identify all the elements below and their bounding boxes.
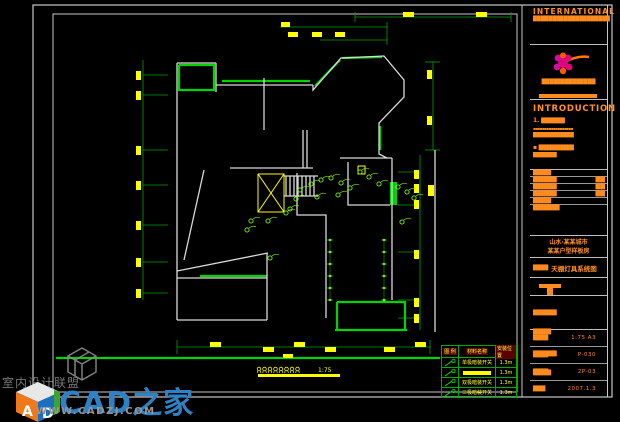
note-bars-section: ████████ ██████ ████████ ██████ [530, 296, 607, 330]
dimension-text-block [263, 347, 274, 352]
dimension-text-block [312, 32, 322, 37]
sheet-info-rows: █████1:75 A3█████P-030█████2P-03████2007… [530, 330, 607, 397]
item1-fineprint: ▪▪▪▪▪▪▪▪▪▪▪▪▪▪▪▪▪▪ [533, 125, 604, 132]
light-leader-line [404, 218, 411, 220]
wall-line [184, 170, 204, 260]
light-chain-dot [329, 263, 331, 265]
figure-title-symbol [263, 367, 267, 371]
t-mark-icon [539, 284, 561, 288]
figure-scale-text: 1:75 [318, 367, 332, 374]
signature-row: ███████████ [530, 184, 607, 191]
dimension-text-block [414, 298, 419, 307]
north-mark-row [530, 278, 607, 296]
dimension-text-block [403, 12, 414, 17]
item2-bar: ████████████ [539, 145, 573, 151]
figure-title-underline [258, 374, 340, 377]
figure-title-symbol [296, 367, 300, 371]
signature-row: ██████ [530, 198, 607, 205]
item1-bar2: ██████████████ [533, 132, 604, 139]
title-label: █████ [533, 265, 547, 271]
sheet-outer-border [33, 5, 612, 397]
title-block: INTERNATIONAL ████████████████████ █████… [530, 5, 608, 397]
signature-row: ███████████ [530, 191, 607, 198]
legend-header-row: 图 例 材料名称安装位置 [442, 346, 516, 357]
light-leader-line [416, 194, 423, 196]
dimension-text-block [414, 200, 419, 209]
figure-title-symbol [285, 367, 289, 371]
figure-title-symbol [268, 367, 272, 371]
light-chain-dot [329, 287, 331, 289]
dimension-text-block [136, 221, 141, 230]
dimension-text-block [414, 250, 419, 259]
wall-line [348, 162, 390, 205]
cad-sheet: 1:75 INTERNATIONAL ████████████████████ … [0, 0, 620, 422]
switch-icon [443, 359, 457, 367]
light-fixture-symbol [358, 170, 362, 174]
window-line [337, 302, 405, 330]
light-leader-line [343, 179, 350, 181]
dimension-text-block [136, 91, 141, 100]
figure-title-symbol [279, 367, 283, 371]
note-bar: ████████ [533, 310, 556, 316]
light-fixture-symbol [377, 182, 381, 186]
light-fixture-symbol [245, 228, 249, 232]
signature-rows: ████████████████████████████████████████… [530, 170, 607, 236]
dimension-text-block [136, 146, 141, 155]
light-fixture-symbol [284, 211, 288, 215]
item1-bar: ████████ [541, 118, 564, 124]
wall-line [313, 56, 404, 158]
company-name-en: INTERNATIONAL [533, 7, 604, 16]
switch-icon [443, 389, 457, 397]
light-chain-dot [329, 251, 331, 253]
light-fixture-symbol [405, 190, 409, 194]
switch-icon [443, 379, 457, 387]
light-fixture-symbol [400, 220, 404, 224]
light-fixture-symbol [268, 256, 272, 260]
light-chain-dot [329, 239, 331, 241]
dimension-text-block [294, 342, 305, 347]
light-leader-line [400, 183, 407, 185]
figure-title-symbol [257, 367, 261, 371]
dimension-text-block [325, 347, 336, 352]
dimension-text-block [335, 32, 345, 37]
switch-icon [443, 369, 457, 377]
light-chain-dot [383, 251, 385, 253]
project-name-section: 山水·某某城市 某某户型样板房 [530, 236, 607, 258]
dimension-text-block [136, 289, 141, 298]
signature-row: ██████ [530, 170, 607, 177]
light-chain-dot [383, 275, 385, 277]
light-leader-line [381, 180, 388, 182]
light-fixture-symbol [329, 176, 333, 180]
legend-row: 1.3m [442, 367, 516, 377]
sheet-info-row: █████2P-03 [530, 364, 607, 381]
light-fixture-symbol [367, 175, 371, 179]
light-leader-line [371, 173, 378, 175]
flower-logo-icon [533, 47, 604, 79]
light-leader-line [333, 174, 340, 176]
item2-number: ▪ [533, 144, 537, 151]
light-leader-line [352, 184, 359, 186]
dimension-text-block [427, 116, 432, 125]
dimension-text-block [384, 347, 395, 352]
light-fixture-symbol [412, 196, 416, 200]
dimension-text-block [281, 22, 290, 27]
light-leader-line [272, 254, 279, 256]
light-leader-line [319, 193, 326, 195]
company-subtitle-cn: ██████████████ [533, 79, 604, 85]
dimension-text-block [136, 258, 141, 267]
sheet-info-row: █████1:75 A3 [530, 330, 607, 347]
dimension-text-block [428, 185, 434, 196]
light-leader-line [340, 191, 347, 193]
light-chain-dot [383, 287, 385, 289]
introduction-heading: INTRODUCTION [533, 104, 604, 114]
light-fixture-symbol [266, 219, 270, 223]
window-line [179, 65, 214, 90]
legend-row: 单极暗装开关1.3m [442, 357, 516, 367]
dimension-text-block [415, 342, 426, 347]
light-chain-dot [329, 275, 331, 277]
sheet-info-row: █████P-030 [530, 347, 607, 364]
light-leader-line [270, 217, 277, 219]
light-leader-line [249, 226, 256, 228]
light-chain-dot [383, 263, 385, 265]
dimension-text-block [414, 170, 419, 179]
wall-line [177, 253, 268, 271]
item2-bar2: ████████ [533, 152, 604, 159]
legend-table: 图 例 材料名称安装位置 单极暗装开关1.3m 1.3m 双极暗装开关1.3m … [441, 345, 517, 398]
company-name-cn: ████████████████████ [533, 16, 604, 22]
dimension-text-block [210, 342, 221, 347]
light-chain-dot [329, 299, 331, 301]
sheet-info-row: ████2007.1.3 [530, 381, 607, 397]
light-fixture-symbol [339, 181, 343, 185]
figure-title-symbol [274, 367, 278, 371]
logo-section: ██████████████ [530, 45, 607, 100]
legend-row: 双极暗装开关1.3m [442, 377, 516, 387]
sheet-inner-border [53, 14, 517, 392]
svg-text:A: A [22, 404, 33, 420]
legend-highlight-bar [463, 371, 491, 375]
door-marker [390, 182, 397, 205]
project-line2: 某某户型样板房 [533, 247, 604, 256]
light-fixture-symbol [319, 178, 323, 182]
dimension-text-block [414, 314, 419, 323]
signature-row: ███████████ [530, 177, 607, 184]
drawing-title: 天棚灯具系统图 [551, 263, 597, 273]
dimension-text-block [283, 354, 293, 358]
introduction-section: INTRODUCTION 1. ████████ ▪▪▪▪▪▪▪▪▪▪▪▪▪▪▪… [530, 100, 607, 170]
company-underline-bar [539, 94, 597, 98]
dimension-text-block [136, 71, 141, 80]
dimension-text-block [476, 12, 487, 17]
dimension-text-block [288, 32, 298, 37]
figure-title-symbol [290, 367, 294, 371]
light-leader-line [292, 205, 299, 207]
light-chain-dot [383, 239, 385, 241]
site-url-text: WWW.CADZJ.COM [36, 406, 156, 417]
light-fixture-symbol [249, 219, 253, 223]
dimension-text-block [427, 70, 432, 79]
project-line1: 山水·某某城市 [533, 238, 604, 247]
light-fixture-symbol [336, 193, 340, 197]
dimension-text-block [136, 181, 141, 190]
company-header: INTERNATIONAL ████████████████████ [530, 5, 607, 45]
light-leader-line [253, 217, 260, 219]
drawing-title-row: █████ 天棚灯具系统图 [530, 258, 607, 278]
light-chain-dot [383, 299, 385, 301]
item1-number: 1. [533, 117, 539, 124]
legend-row: 三极暗装开关1.3m [442, 387, 516, 397]
signature-row: █████████ [530, 205, 607, 211]
